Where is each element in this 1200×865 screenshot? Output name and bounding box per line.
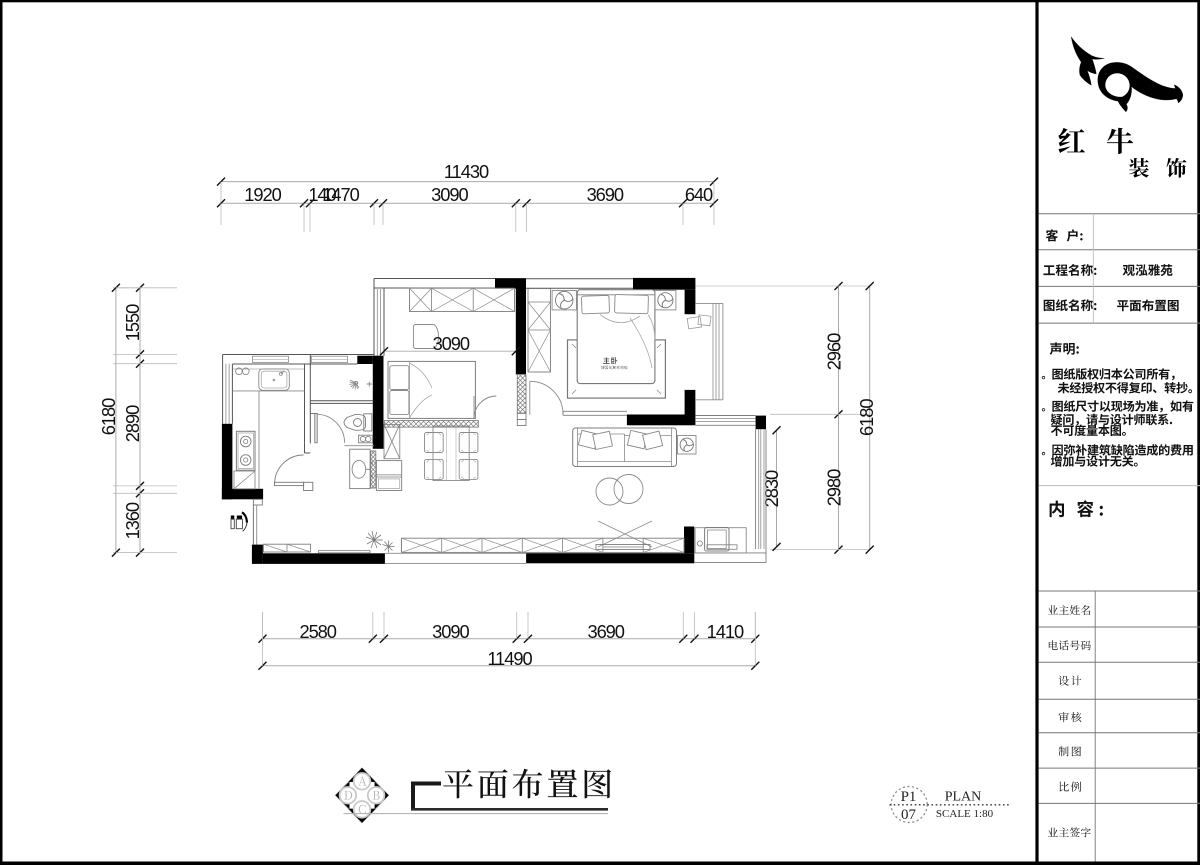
svg-text:2980: 2980 bbox=[824, 469, 845, 506]
svg-text:2890: 2890 bbox=[122, 405, 143, 442]
svg-text:1920: 1920 bbox=[244, 184, 281, 205]
svg-text:2960: 2960 bbox=[824, 333, 845, 370]
svg-text:3690: 3690 bbox=[587, 184, 624, 205]
svg-text:2580: 2580 bbox=[299, 621, 336, 642]
svg-text:07: 07 bbox=[901, 807, 917, 823]
svg-text:SCALE 1:80: SCALE 1:80 bbox=[936, 808, 994, 820]
svg-text:PLAN: PLAN bbox=[945, 789, 982, 804]
svg-text:3090: 3090 bbox=[433, 333, 470, 354]
svg-text:3090: 3090 bbox=[431, 184, 468, 205]
svg-text:P1: P1 bbox=[901, 789, 917, 805]
svg-text:1550: 1550 bbox=[122, 304, 143, 341]
svg-text:6180: 6180 bbox=[856, 399, 877, 436]
svg-text:640: 640 bbox=[685, 184, 713, 205]
svg-text:1360: 1360 bbox=[122, 502, 143, 539]
svg-text:11430: 11430 bbox=[444, 161, 489, 182]
svg-text:3090: 3090 bbox=[432, 621, 469, 642]
svg-text:6180: 6180 bbox=[98, 398, 119, 435]
svg-text:1470: 1470 bbox=[322, 184, 359, 205]
svg-text:11490: 11490 bbox=[487, 648, 532, 669]
svg-text:1410: 1410 bbox=[707, 621, 744, 642]
svg-text:3690: 3690 bbox=[587, 621, 624, 642]
